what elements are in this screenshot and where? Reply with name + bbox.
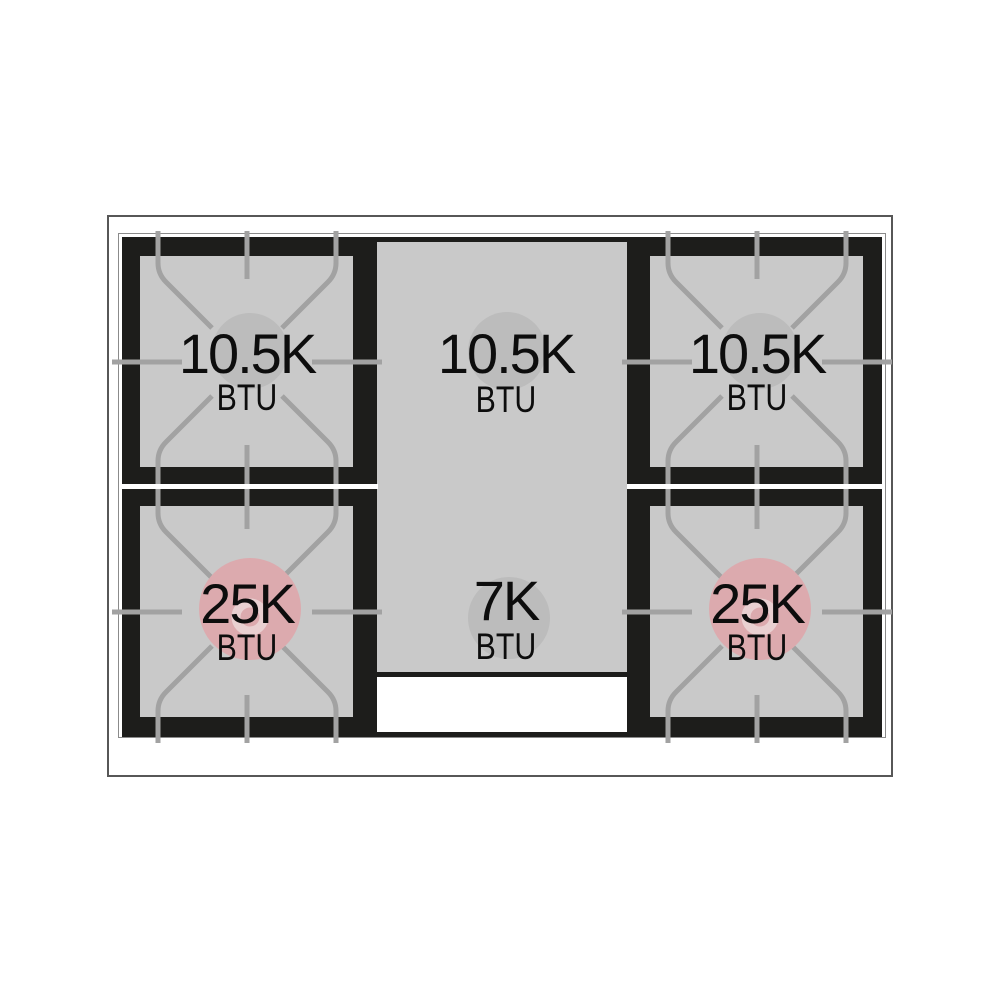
burner-module-top-left: 10.5K BTU [122, 237, 372, 487]
burner-unit-label: BTU [476, 626, 537, 668]
burner-module-top-right: 10.5K BTU [632, 237, 882, 487]
center-zone-lower-panel [377, 677, 627, 732]
burner-module-bottom-right: 25K BTU [632, 487, 882, 737]
burner-unit-label: BTU [727, 377, 788, 419]
burner-rating-label: 7K [474, 569, 540, 632]
burner-rating-label: 10.5K [179, 322, 317, 385]
burner-rating-label: 25K [200, 572, 295, 635]
burner-unit-label: BTU [217, 627, 278, 669]
module-seam-line [627, 484, 884, 489]
burner-unit-label: BTU [476, 379, 537, 421]
burner-rating-label: 25K [710, 572, 805, 635]
burner-unit-label: BTU [727, 627, 788, 669]
burner-unit-label: BTU [217, 377, 278, 419]
cooktop-diagram: 10.5K BTU 7K BTU 10.5K BTU [0, 0, 1000, 1000]
burner-rating-label: 10.5K [438, 322, 576, 385]
burner-rating-label: 10.5K [689, 322, 827, 385]
center-burner-zone: 10.5K BTU 7K BTU [372, 237, 632, 737]
burner-module-bottom-left: 25K BTU [122, 487, 372, 737]
module-seam-line [121, 484, 378, 489]
